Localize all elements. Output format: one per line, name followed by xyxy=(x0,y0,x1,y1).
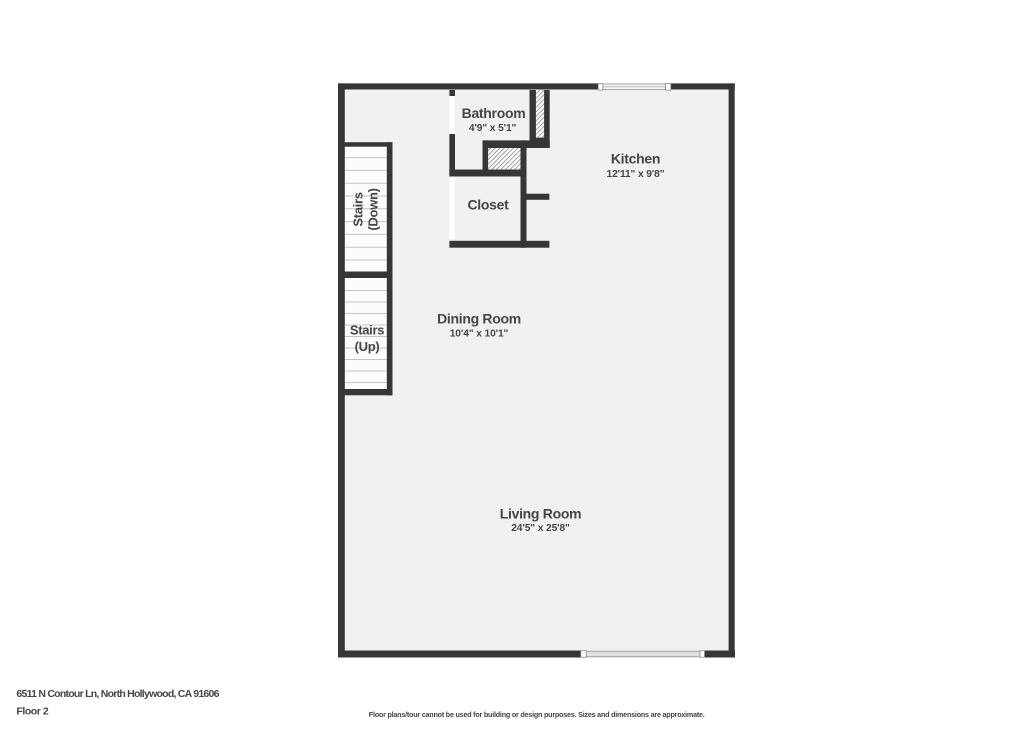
svg-text:Floor plans/tour cannot be use: Floor plans/tour cannot be used for buil… xyxy=(369,710,705,719)
svg-text:Living Room: Living Room xyxy=(500,506,581,522)
svg-text:Kitchen: Kitchen xyxy=(611,151,660,167)
svg-text:(Down): (Down) xyxy=(366,188,381,230)
svg-text:12'11" x 9'8": 12'11" x 9'8" xyxy=(607,169,665,180)
svg-text:10'4" x 10'1": 10'4" x 10'1" xyxy=(450,328,509,339)
svg-text:Stairs: Stairs xyxy=(351,192,366,226)
svg-text:6511 N Contour Ln, North Holly: 6511 N Contour Ln, North Hollywood, CA 9… xyxy=(16,688,219,700)
svg-text:Dining Room: Dining Room xyxy=(437,311,521,327)
svg-text:4'9" x 5'1": 4'9" x 5'1" xyxy=(469,123,517,134)
svg-text:(Up): (Up) xyxy=(355,339,380,354)
svg-text:24'5" x 25'8": 24'5" x 25'8" xyxy=(511,523,570,534)
svg-text:Floor 2: Floor 2 xyxy=(16,706,48,718)
svg-text:Closet: Closet xyxy=(468,197,510,213)
svg-text:Bathroom: Bathroom xyxy=(462,105,526,121)
svg-text:Stairs: Stairs xyxy=(350,322,384,337)
